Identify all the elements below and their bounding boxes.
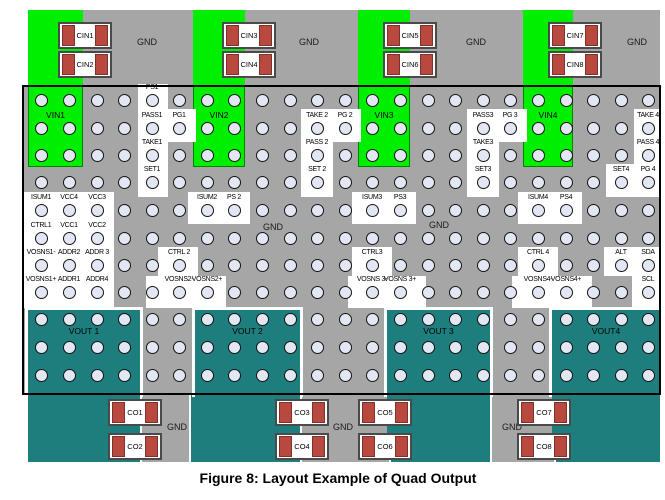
capacitor-label: CO3 [275,408,329,418]
gnd-label: GND [333,422,353,432]
gnd-label: GND [299,37,319,47]
capacitor-label: CO7 [517,408,571,418]
capacitor-label: CO1 [108,408,162,418]
gnd-label: GND [466,37,486,47]
capacitor-label: CIN2 [58,60,112,70]
capacitor-label: CO8 [517,442,571,452]
capacitor-label: CIN5 [383,31,437,41]
gnd-label: GND [627,37,647,47]
capacitor-label: CO4 [275,442,329,452]
capacitor-label: CO6 [358,442,412,452]
gnd-label: GND [167,422,187,432]
capacitor-label: CO5 [358,408,412,418]
capacitor-label: CIN8 [548,60,602,70]
capacitor-label: CIN4 [222,60,276,70]
capacitor-label: CIN1 [58,31,112,41]
layout-border [22,85,661,395]
capacitor-label: CIN6 [383,60,437,70]
gnd-label: GND [137,37,157,47]
capacitor-label: CIN7 [548,31,602,41]
capacitor-label: CIN3 [222,31,276,41]
capacitor-label: CO2 [108,442,162,452]
figure-caption: Figure 8: Layout Example of Quad Output [200,470,477,486]
pcb-layout-diagram: PS1PASS1PG1TAKE 2PG 2PASS3PG 3TAKE 4TAKE… [0,0,665,500]
